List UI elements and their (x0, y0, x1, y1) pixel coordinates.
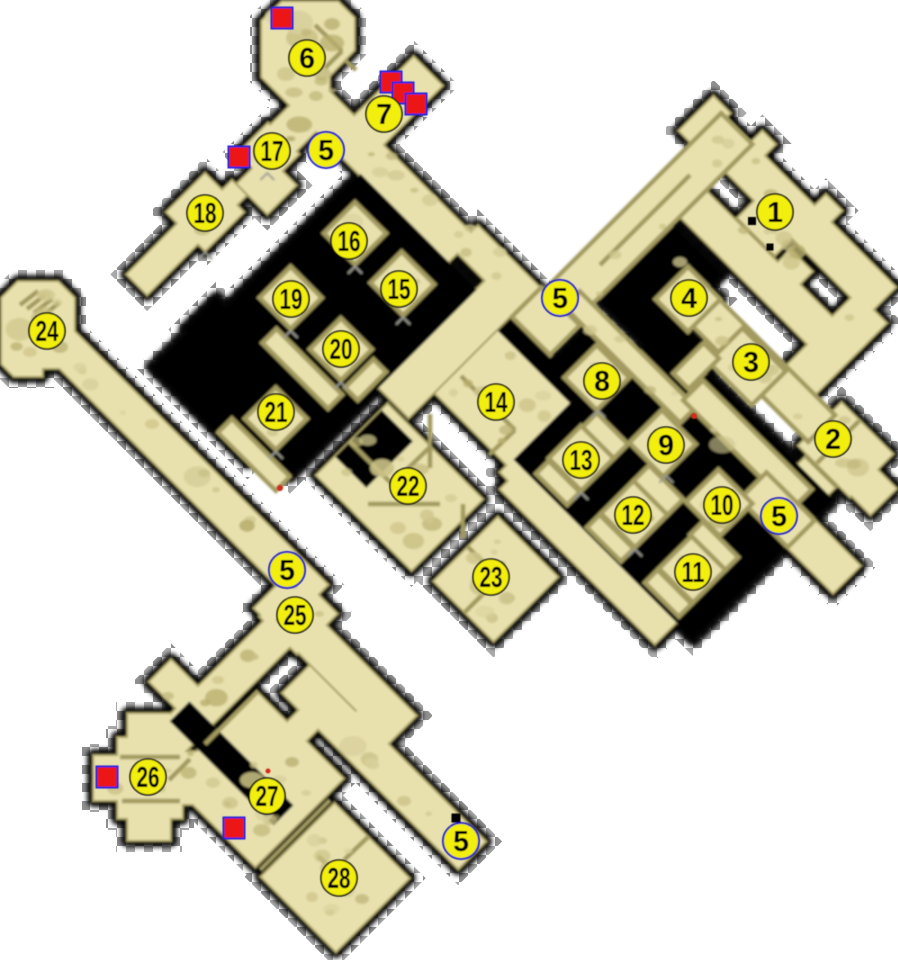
svg-text:17: 17 (261, 136, 284, 168)
svg-text:5: 5 (453, 826, 469, 858)
svg-text:12: 12 (622, 500, 645, 532)
svg-text:5: 5 (279, 555, 295, 587)
svg-text:11: 11 (682, 557, 705, 589)
svg-text:24: 24 (36, 316, 59, 348)
svg-text:21: 21 (265, 397, 288, 429)
svg-text:6: 6 (299, 43, 315, 75)
svg-text:22: 22 (397, 471, 420, 503)
svg-text:9: 9 (658, 430, 674, 462)
svg-text:10: 10 (711, 490, 734, 522)
svg-text:3: 3 (743, 347, 759, 379)
svg-text:19: 19 (280, 284, 303, 316)
svg-text:25: 25 (284, 600, 307, 632)
svg-text:8: 8 (594, 366, 610, 398)
svg-text:23: 23 (480, 562, 503, 594)
svg-text:5: 5 (771, 501, 787, 533)
svg-text:1: 1 (767, 197, 783, 229)
svg-text:7: 7 (376, 99, 392, 131)
svg-text:13: 13 (570, 445, 593, 477)
svg-text:16: 16 (338, 226, 361, 258)
svg-text:27: 27 (256, 781, 279, 813)
svg-text:26: 26 (137, 762, 160, 794)
svg-text:15: 15 (388, 274, 411, 306)
svg-text:4: 4 (681, 283, 697, 315)
svg-text:5: 5 (552, 283, 568, 315)
svg-text:18: 18 (194, 198, 217, 230)
svg-text:5: 5 (318, 135, 334, 167)
svg-text:14: 14 (485, 387, 508, 419)
svg-text:20: 20 (330, 334, 353, 366)
svg-text:2: 2 (825, 424, 841, 456)
svg-text:28: 28 (328, 863, 351, 895)
